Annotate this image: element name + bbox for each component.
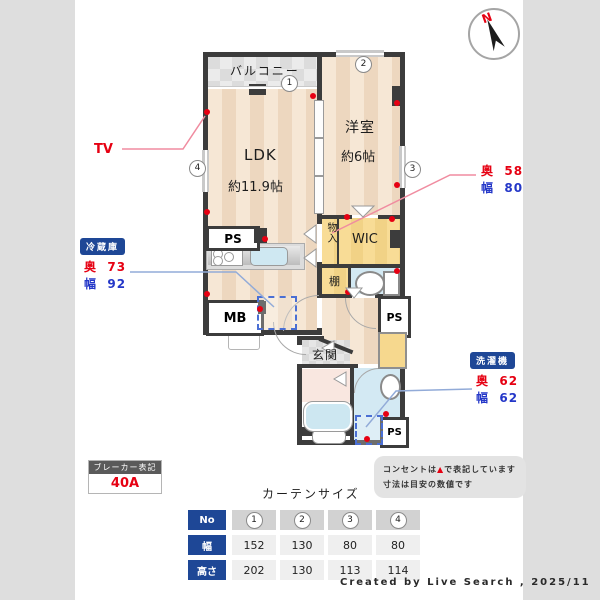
storage-width: 幅 80 [481,179,523,196]
note-line-1: コンセントは▲で表記しています [383,462,517,477]
outlet-marker [204,291,210,297]
wall-stub-wic [390,230,405,248]
wall-wash-top-a [350,364,358,368]
outlet-marker [394,100,400,106]
fridge-badge: 冷蔵庫 [80,238,125,255]
compass: N [468,8,520,60]
outlet-marker [262,236,268,242]
wall-wic-bottom [320,264,405,268]
wic-label: WIC [352,232,378,247]
sliding-door-panel [314,176,324,214]
wash-basin [380,374,401,400]
fridge-space [257,296,297,330]
mb-box: MB [206,300,264,336]
curtain-row-header-width: 幅 [188,535,226,555]
curtain-col-header-2: 2 [280,510,324,530]
balcony-label: バルコニー [230,62,300,79]
outlet-marker [344,214,350,220]
curtain-width-1: 152 [232,535,276,555]
sliding-door-panel [314,100,324,138]
washer-width: 幅 62 [476,389,518,406]
curtain-row-header-height: 高さ [188,560,226,580]
floorplan-image: PS MB PS PS 1 2 3 4 バルコニー LDK 約11.9帖 洋室 … [0,0,600,600]
outlet-marker [364,436,370,442]
ps-box-bottom: PS [380,417,409,448]
bathtub [304,402,352,431]
ps-label: PS [387,427,402,438]
shoe-cabinet [378,332,407,369]
storage-label: 物入 [323,222,338,244]
compass-needle-icon [470,10,518,58]
ldk-floor [208,89,317,330]
washer-badge: 洗濯機 [470,352,515,369]
ps-label: PS [387,311,403,324]
sliding-door-panel [314,138,324,176]
shelf-label: 棚 [329,273,340,289]
outlet-marker [204,209,210,215]
credit-text: Created by Live Search , 2025/11 [340,577,591,588]
curtain-row-header-no: No [188,510,226,530]
wall-bath-wash-divider [350,365,354,443]
stove-burner [213,256,223,266]
notes-box: コンセントは▲で表記しています 寸法は目安の数値です [374,456,526,498]
toilet-bowl [355,271,385,296]
bath-step [312,429,346,444]
breaker-value: 40A [89,474,161,493]
outlet-marker [310,93,316,99]
outlet-marker [257,306,263,312]
ps-box-kitchen: PS [206,226,260,251]
western-room-label: 洋室 [345,117,375,137]
breaker-title: ブレーカー表記 [89,461,161,474]
outlet-marker [383,411,389,417]
window-marker-4: 4 [189,160,206,177]
storage-depth: 奥 58 [481,162,523,179]
curtain-col-header-1: 1 [232,510,276,530]
outlet-marker [204,109,210,115]
western-room-size-label: 約6帖 [341,146,375,165]
wall-entrance-bath-divider [297,364,354,368]
mb-label: MB [224,311,247,326]
curtain-width-3: 80 [328,535,372,555]
outlet-marker [394,268,400,274]
outlet-marker [389,216,395,222]
curtain-height-2: 130 [280,560,324,580]
fridge-depth: 奥 73 [84,258,126,275]
curtain-table-title: カーテンサイズ [262,485,360,502]
window-marker-3: 3 [404,161,421,178]
fridge-width: 幅 92 [84,275,126,292]
curtain-width-4: 80 [376,535,420,555]
tv-label: TV [94,142,113,157]
curtain-col-header-3: 3 [328,510,372,530]
wall-right-upper [400,52,405,218]
wall-divider-lower-a [317,218,322,224]
ps-label: PS [224,232,241,246]
window-1-balcony [208,86,317,89]
ldk-size-label: 約11.9帖 [228,176,283,195]
curtain-col-header-4: 4 [376,510,420,530]
stove-burner [224,252,234,262]
ldk-label: LDK [244,146,277,164]
curtain-height-1: 202 [232,560,276,580]
bathroom-floor [302,369,350,402]
outlet-marker [394,182,400,188]
entrance-label: 玄関 [312,346,338,363]
window-marker-2: 2 [355,56,372,73]
toilet-tank [383,271,400,296]
curtain-width-2: 130 [280,535,324,555]
breaker-box: ブレーカー表記 40A [88,460,162,494]
note-line-2: 寸法は目安の数値です [383,477,517,492]
washer-depth: 奥 62 [476,372,518,389]
outlet-marker [345,289,351,295]
